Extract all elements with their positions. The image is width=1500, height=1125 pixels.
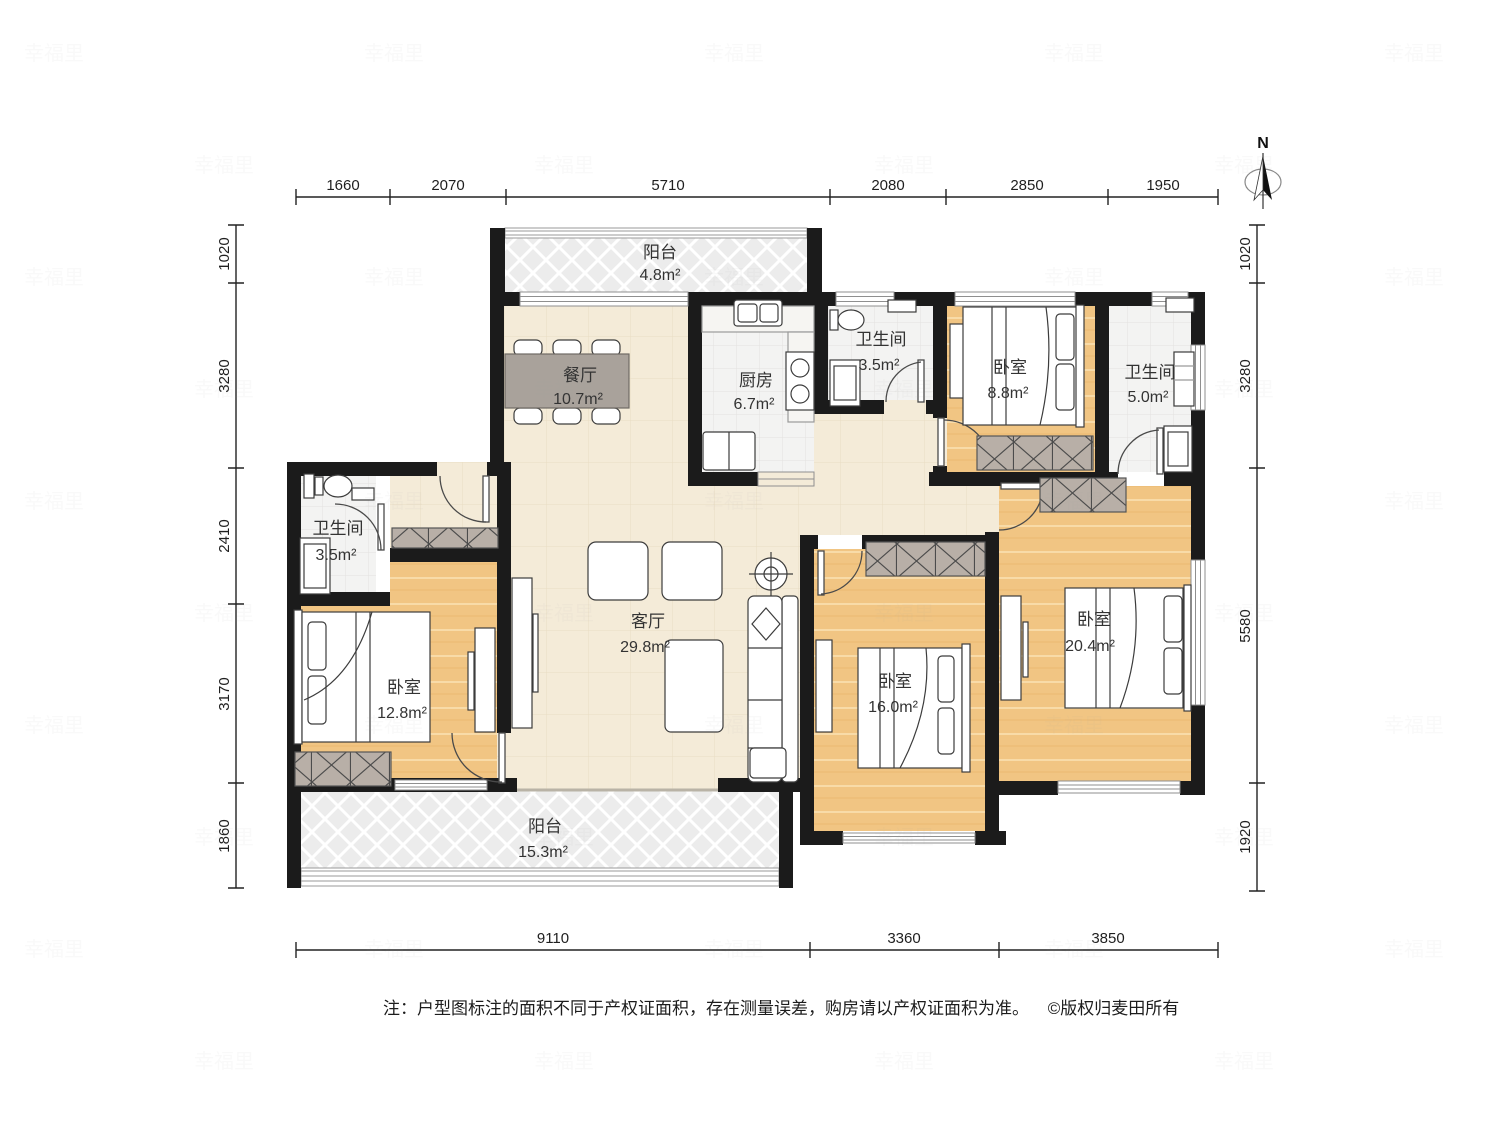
floor-plan-page: 幸福里 幸福里 [0,0,1500,1125]
floor-plan: 幸福里 幸福里 [0,0,1500,1125]
watermark-overlay [0,0,1500,1125]
